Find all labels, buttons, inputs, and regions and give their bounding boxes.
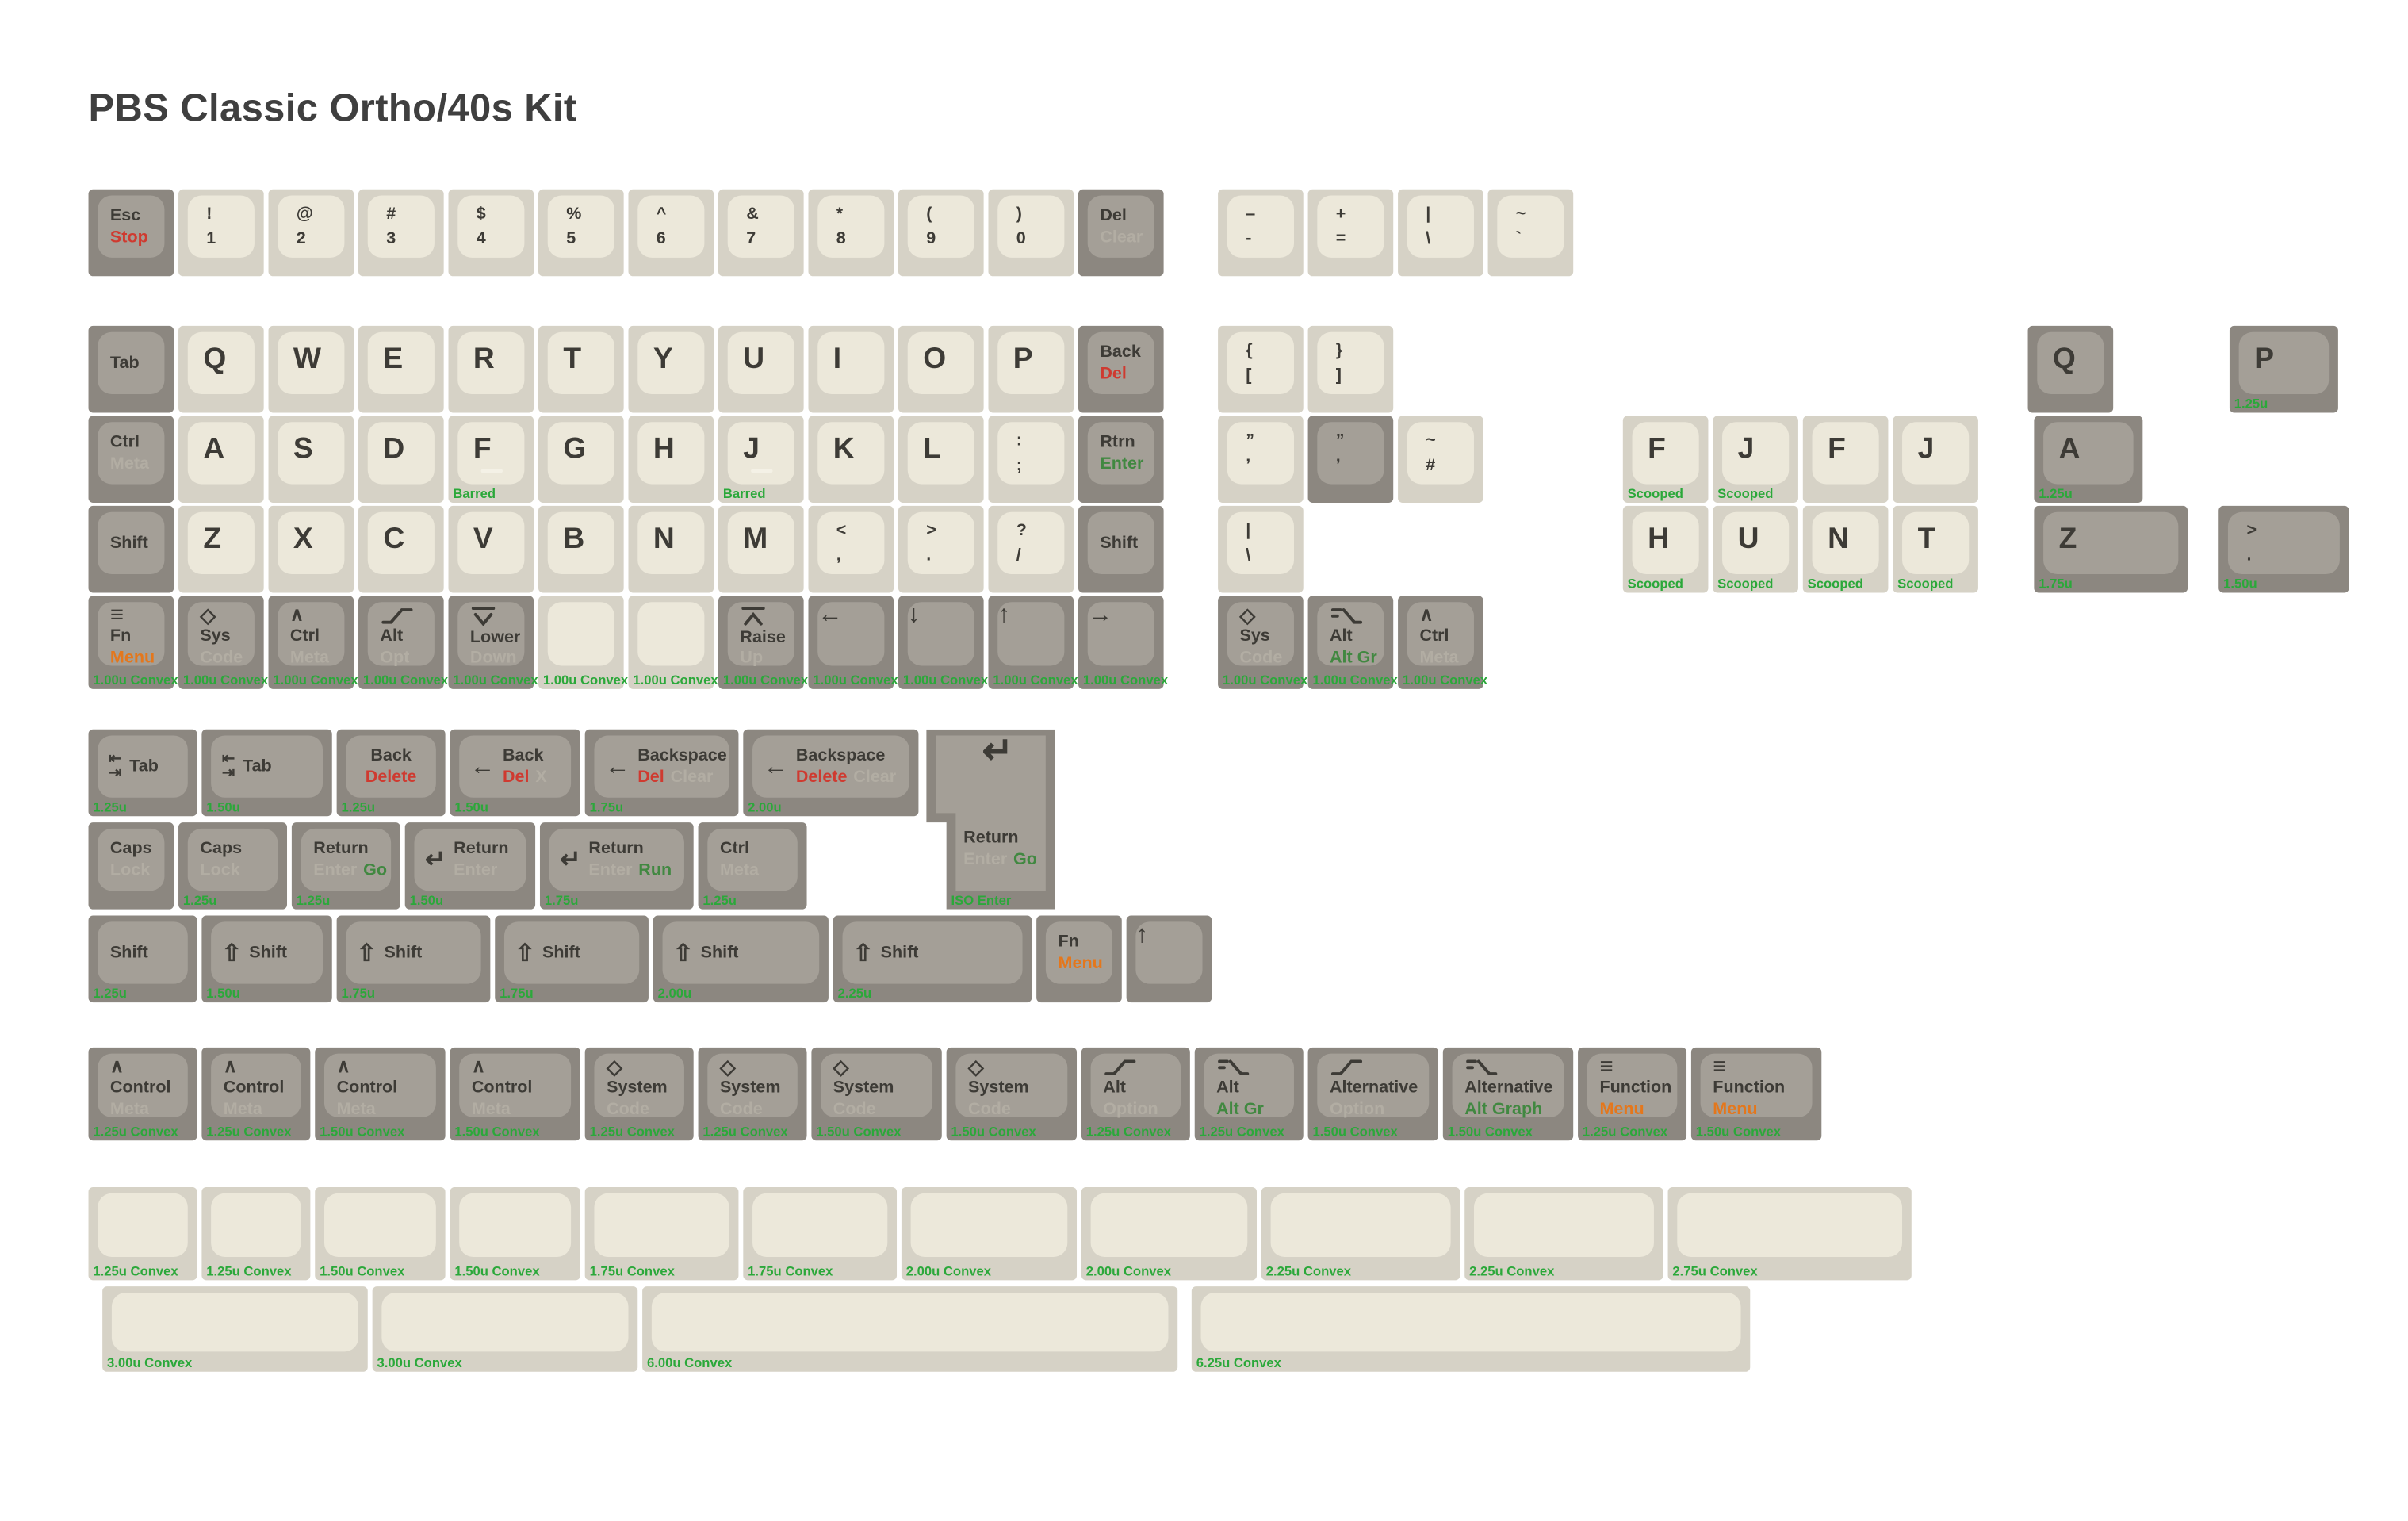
legend-text: Delete (796, 768, 848, 787)
key-legend: ← (817, 602, 884, 670)
key-legend: RaiseUp (728, 602, 794, 670)
legend-text: F (1828, 433, 1846, 467)
key-tilde-hash: ~# (1398, 416, 1483, 503)
key-legend: Z (188, 512, 255, 574)
key-legend: I (817, 332, 884, 394)
size-label: 1.25u Convex (206, 1263, 291, 1279)
key-m: M (718, 506, 804, 593)
legend-line: Opt (380, 648, 434, 667)
legend-text: % (566, 205, 581, 224)
legend-text: ) (1016, 205, 1022, 224)
legend-text: X (535, 768, 546, 787)
legend-text: Rtrn (1100, 433, 1135, 452)
shift-icon: ⇧ (515, 943, 535, 963)
legend-text: P (2254, 343, 2274, 377)
key-space-3-00-b: 3.00u Convex (373, 1286, 638, 1372)
legend-line: Function (1713, 1078, 1812, 1098)
key-legend: Q (188, 332, 255, 394)
key-k: K (808, 416, 894, 503)
size-label: 1.25u (93, 986, 127, 1002)
legend-text: Tab (110, 354, 140, 373)
key-legend: LowerDown (457, 602, 524, 670)
legend-text: T (1918, 523, 1936, 557)
key-p-dark: P1.25u (2230, 326, 2338, 413)
legend-line: Ctrl (290, 627, 344, 646)
key-legend: ^6 (637, 196, 704, 258)
shift-row-row: Shift1.25u⇧Shift1.50u⇧Shift1.75u⇧Shift1.… (89, 916, 1212, 1003)
legend-text: Del (1100, 206, 1127, 225)
size-label: Scooped (1717, 485, 1773, 501)
legend-text: A (2059, 433, 2081, 467)
key-legend: ?/ (997, 512, 1064, 574)
legend-text: Backspace (637, 746, 727, 765)
size-label: 1.50u Convex (320, 1263, 404, 1279)
key-f-extra: F (1803, 416, 1889, 503)
key-legend: |\ (1227, 512, 1294, 574)
size-label: 1.25u Convex (590, 1124, 675, 1140)
size-label: Barred (723, 485, 766, 501)
key-shift-left: Shift (89, 506, 174, 593)
key-legend: Shift (1088, 512, 1154, 574)
key-back-delete: BackDelete1.25u (337, 730, 446, 817)
legend-text: ? (1016, 521, 1027, 540)
legend-line: Return (963, 829, 1037, 848)
size-label: 1.25u Convex (93, 1124, 178, 1140)
legend-text: ” (1246, 431, 1254, 450)
key-legend: ReturnEnterGo (963, 829, 1037, 869)
legend-text: Return (454, 840, 508, 859)
legend-line: Option (1330, 1099, 1429, 1118)
key-legend: AlternativeAlt Graph (1453, 1054, 1564, 1122)
fn-icon: ≡ (1599, 1057, 1677, 1077)
control-system-row-row: ∧ControlMeta1.25u Convex∧ControlMeta1.25… (89, 1048, 1822, 1140)
legend-text: Code (200, 648, 243, 667)
key-space-2-00-b: 2.00u Convex (1081, 1187, 1257, 1280)
legend-text: ~ (1426, 431, 1436, 450)
size-label: Scooped (1897, 576, 1953, 592)
legend-line: Shift (110, 534, 164, 553)
size-label: 3.00u Convex (107, 1354, 192, 1370)
legend-text: Control (337, 1078, 398, 1098)
legend-line: Meta (472, 1099, 571, 1118)
legend-text: . (926, 546, 931, 565)
legend-line: . (2246, 546, 2339, 565)
legend-text: 6 (657, 229, 666, 248)
legend-text: Menu (1059, 953, 1103, 972)
key-legend: ←BackspaceDelClear (594, 736, 729, 798)
legend-line: > (926, 521, 974, 540)
legend-text: Code (968, 1099, 1011, 1118)
key-t: T (538, 326, 624, 413)
legend-text: Back (503, 746, 543, 765)
size-label: 1.25u Convex (702, 1124, 787, 1140)
legend-line: Shift (701, 943, 739, 962)
legend-line: Menu (110, 648, 164, 667)
keycap-top (594, 1193, 729, 1257)
size-label: 1.00u Convex (363, 672, 448, 688)
legend-text: Shift (110, 534, 148, 553)
key-pipe-backslash-2: |\ (1218, 506, 1304, 593)
key-legend: R (457, 332, 524, 394)
legend-text: M (743, 523, 768, 557)
legend-text: 5 (566, 229, 576, 248)
legend-text: Lock (110, 860, 150, 879)
key-return-enter-run: ↵ReturnEnterRun1.75u (540, 822, 694, 910)
key-legend: C (368, 512, 435, 574)
size-label: 1.25u (2039, 485, 2073, 501)
key-legend: ∧ControlMeta (98, 1054, 187, 1122)
legend-line: | (1426, 205, 1474, 224)
key-space-2-25-b: 2.25u Convex (1464, 1187, 1663, 1280)
legend-text: ’ (1336, 455, 1341, 474)
homing-cluster-row: HScoopedUScoopedNScoopedTScooped (1623, 506, 1978, 593)
legend-line: Code (200, 648, 254, 667)
key-legend: A (2043, 422, 2133, 484)
key-legend: E (368, 332, 435, 394)
legend-text: @ (297, 205, 313, 224)
size-label: 1.00u Convex (1403, 672, 1487, 688)
legend-line: . (926, 546, 974, 565)
key-arrow-left: ←1.00u Convex (808, 596, 894, 688)
key-legend: ↵ReturnEnterRun (549, 829, 684, 891)
key-lower-down: LowerDown1.00u Convex (449, 596, 534, 688)
size-label: 2.00u (658, 986, 692, 1002)
size-label: 1.75u Convex (748, 1263, 833, 1279)
key-alt-altgr: AltAlt Gr1.00u Convex (1308, 596, 1394, 688)
key-y: Y (629, 326, 714, 413)
caps-return-row-row: CapsLockCapsLock1.25uReturnEnterGo1.25u↵… (89, 822, 807, 910)
key-legend: Shift (98, 921, 187, 983)
legend-line: Raise (740, 628, 794, 647)
legend-line: Return (454, 840, 508, 859)
key-quotes-dark: ”’ (1308, 416, 1394, 503)
legend-text: Ctrl (720, 840, 749, 859)
size-label: 2.25u (838, 986, 872, 1002)
legend-text: E (383, 343, 403, 377)
main-block-row: TabQWERTYUIOPBackDel (89, 326, 1164, 413)
fn-icon: ≡ (110, 605, 164, 625)
keycap-top (1091, 1193, 1248, 1257)
legend-text: Code (720, 1099, 763, 1118)
legend-text: ↓ (908, 602, 921, 670)
legend-line: Alt (1330, 627, 1384, 646)
legend-text: Alt (1330, 627, 1353, 646)
key-space-1-25-b: 1.25u Convex (201, 1187, 310, 1280)
key-ctrl-meta-3: CtrlMeta1.25u (699, 822, 807, 910)
dark-alpha-cluster-row: QP1.25u (2028, 326, 2338, 413)
legend-line: \ (1246, 546, 1294, 565)
legend-line: DelClear (637, 768, 727, 787)
size-label: 1.50u (410, 892, 444, 908)
key-legend: V (457, 512, 524, 574)
legend-line: System (968, 1078, 1067, 1098)
legend-line: Shift (384, 943, 422, 962)
key-rtrn-enter: RtrnEnter (1078, 416, 1164, 503)
legend-line: Return (313, 840, 391, 859)
legend-text: Tab (129, 757, 159, 776)
legend-text: D (383, 433, 404, 467)
key-legend: Z (2043, 512, 2178, 574)
key-a: A (178, 416, 264, 503)
spacebar-row-large-row: 3.00u Convex3.00u Convex6.00u Convex6.25… (102, 1286, 1750, 1372)
legend-line: Down (470, 649, 524, 668)
legend-text: Function (1713, 1078, 1785, 1098)
legend-line: Code (833, 1099, 932, 1118)
key-plus-equals: += (1308, 190, 1394, 277)
key-legend: ⇧Shift (843, 921, 1023, 983)
legend-text: { (1246, 341, 1252, 360)
legend-line: Shift (542, 943, 580, 962)
key-space-2-00-a: 2.00u Convex (902, 1187, 1077, 1280)
key-legend: P (997, 332, 1064, 394)
legend-line: Backspace (637, 746, 727, 765)
size-label: 1.25u (341, 799, 375, 815)
legend-line: ” (1336, 431, 1384, 450)
size-label: 1.25u Convex (1583, 1124, 1667, 1140)
legend-text: ; (1016, 455, 1022, 474)
sys-icon: ◇ (200, 605, 254, 625)
legend-text: N (1828, 523, 1849, 557)
keycap-top (1677, 1193, 1902, 1257)
legend-text: L (923, 433, 941, 467)
legend-text: - (1246, 229, 1251, 248)
key-legend: ∧ControlMeta (459, 1054, 571, 1122)
key-back-del: BackDel (1078, 326, 1164, 413)
key-n-scooped: NScooped (1803, 506, 1889, 593)
tab-backspace-row-row: ⇤⇥Tab1.25u⇤⇥Tab1.50uBackDelete1.25u←Back… (89, 730, 919, 817)
key-legend: ⇧Shift (504, 921, 639, 983)
option-icon (380, 605, 434, 625)
key-pipe-backslash: |\ (1398, 190, 1483, 277)
homing-cluster-row: FScoopedJScoopedFJ (1623, 416, 1978, 503)
key-5: %5 (538, 190, 624, 277)
legend-text: ] (1336, 366, 1342, 385)
size-label: 1.00u Convex (1223, 672, 1307, 688)
legend-text: ! (206, 205, 212, 224)
key-9: (9 (898, 190, 984, 277)
size-label: 1.50u (206, 799, 240, 815)
legend-line: - (1246, 229, 1294, 248)
legend-text: Tab (243, 757, 272, 776)
spacebar-row-small-row: 1.25u Convex1.25u Convex1.50u Convex1.50… (89, 1187, 1912, 1280)
key-legend: F (1633, 422, 1699, 484)
option-icon (1103, 1057, 1181, 1077)
legend-text: Alt (1103, 1078, 1126, 1098)
legend-text: Shift (249, 943, 287, 962)
key-legend: AlternativeOption (1317, 1054, 1429, 1122)
size-label: 1.25u Convex (1200, 1124, 1284, 1140)
key-legend: DelClear (1088, 196, 1154, 258)
legend-line: * (836, 205, 885, 224)
legend-text: Return (588, 840, 643, 859)
legend-text: Down (470, 649, 517, 668)
legend-line: Stop (110, 228, 164, 247)
legend-line: ~ (1426, 431, 1474, 450)
key-legend: P (2239, 332, 2329, 394)
legend-text: Meta (472, 1099, 511, 1118)
legend-text: System (833, 1078, 894, 1098)
key-legend: Y (637, 332, 704, 394)
key-legend: RtrnEnter (1088, 422, 1154, 484)
legend-text: Ctrl (110, 433, 140, 452)
size-label: 1.25u (183, 892, 217, 908)
legend-line: Menu (1599, 1099, 1677, 1118)
legend-text: Enter (313, 860, 357, 879)
key-esc-stop: EscStop (89, 190, 174, 277)
key-legend: ⇧Shift (663, 921, 820, 983)
legend-text: Esc (110, 206, 140, 225)
altgr-icon (1330, 605, 1384, 625)
key-b: B (538, 506, 624, 593)
legend-text: Menu (110, 648, 155, 667)
legend-text: Return (313, 840, 368, 859)
legend-text: Del (1100, 364, 1127, 383)
key-legend: @2 (278, 196, 344, 258)
keycap-top (637, 602, 704, 665)
legend-line: 5 (566, 229, 614, 248)
legend-text: System (607, 1078, 668, 1098)
key-legend: )0 (997, 196, 1064, 258)
legend-text: 0 (1016, 229, 1026, 248)
key-legend: AltOpt (368, 602, 435, 670)
size-label: Barred (453, 485, 496, 501)
size-label: 1.75u (500, 986, 534, 1002)
key-legend: U (728, 332, 794, 394)
key-c: C (358, 506, 444, 593)
keycap-kit-canvas: PBS Classic Ortho/40s Kit EscStop!1@2#3$… (0, 0, 2408, 1521)
legend-text: = (1336, 229, 1346, 248)
key-legend: ReturnEnterGo (301, 829, 391, 891)
legend-text: P (1013, 343, 1033, 377)
legend-text: Delete (366, 768, 417, 787)
legend-text: Sys (200, 627, 230, 646)
legend-text: J (1918, 433, 1935, 467)
legend-text: Backspace (796, 746, 886, 765)
key-legend: J (1722, 422, 1789, 484)
size-label: 1.00u Convex (723, 672, 808, 688)
legend-line: System (720, 1078, 798, 1098)
key-2: @2 (269, 190, 354, 277)
size-label: 2.75u Convex (1672, 1263, 1757, 1279)
size-label: Scooped (1808, 576, 1863, 592)
ctrl-icon: ∧ (290, 605, 344, 625)
key-w: W (269, 326, 354, 413)
key-function-menu-1-50: ≡FunctionMenu1.50u Convex (1691, 1048, 1821, 1140)
legend-line: ( (926, 205, 974, 224)
return-icon: ↵ (982, 741, 1013, 761)
legend-text: / (1016, 546, 1021, 565)
legend-line: Shift (110, 943, 188, 962)
key-control-meta-1-50-b: ∧ControlMeta1.50u Convex (450, 1048, 580, 1140)
legend-text: Return (963, 829, 1018, 848)
key-s: S (269, 416, 354, 503)
legend-line: } (1336, 341, 1384, 360)
key-i: I (808, 326, 894, 413)
legend-text: Meta (720, 860, 759, 879)
legend-text: ~ (1516, 205, 1526, 224)
key-legend: → (1088, 602, 1154, 670)
key-arrow-down: ↓1.00u Convex (898, 596, 984, 688)
legend-text: ← (817, 602, 842, 670)
legend-text: Alt Gr (1330, 648, 1377, 667)
key-del-clear: DelClear (1078, 190, 1164, 277)
legend-text: W (293, 343, 321, 377)
legend-text: Code (833, 1099, 876, 1118)
legend-text: Control (472, 1078, 533, 1098)
legend-text: Q (203, 343, 226, 377)
key-legend: ◇SystemCode (707, 1054, 797, 1122)
legend-line: Lock (200, 860, 278, 879)
legend-line: Meta (290, 648, 344, 667)
key-blank-convex: 1.00u Convex (538, 596, 624, 688)
ctrl-icon: ∧ (472, 1057, 571, 1077)
legend-line: 4 (477, 229, 525, 248)
legend-line: 9 (926, 229, 974, 248)
legend-line: Menu (1713, 1099, 1812, 1118)
legend-line: ? (1016, 521, 1065, 540)
key-return-enter: ↵ReturnEnter1.50u (405, 822, 535, 910)
legend-text: Opt (380, 648, 409, 667)
legend-line: EnterGo (963, 849, 1037, 868)
size-label: Scooped (1628, 485, 1683, 501)
key-quotes-light: ”’ (1218, 416, 1304, 503)
legend-text: Raise (740, 628, 785, 647)
size-label: 2.00u (748, 799, 782, 815)
key-brace-bracket-right: }] (1308, 326, 1394, 413)
legend-text: 1 (206, 229, 216, 248)
key-space-1-75-a: 1.75u Convex (585, 1187, 739, 1280)
legend-text: Enter (963, 849, 1007, 868)
legend-line: = (1336, 229, 1384, 248)
legend-text: Ctrl (290, 627, 320, 646)
key-legend: ◇SystemCode (594, 1054, 683, 1122)
altgr-icon (1216, 1057, 1294, 1077)
key-j-barred: JBarred (718, 416, 804, 503)
ctrl-icon: ∧ (1419, 605, 1473, 625)
key-legend: N (1813, 512, 1879, 574)
legend-text: Sys (1239, 627, 1269, 646)
ctrl-icon: ∧ (110, 1057, 188, 1077)
key-legend: B (548, 512, 614, 574)
key-legend: {[ (1227, 332, 1294, 394)
legend-line: Shift (881, 943, 919, 962)
legend-text: [ (1246, 366, 1251, 385)
legend-text: ^ (657, 205, 667, 224)
size-label: 2.25u Convex (1469, 1263, 1554, 1279)
key-arrow-right: →1.00u Convex (1078, 596, 1164, 688)
key-shift-1-75-b: ⇧Shift1.75u (495, 916, 649, 1003)
legend-text: Shift (384, 943, 422, 962)
key-tab-1-50: ⇤⇥Tab1.50u (201, 730, 331, 817)
legend-text: Lock (200, 860, 239, 879)
size-label: 2.00u Convex (906, 1263, 991, 1279)
legend-text: Code (1239, 648, 1282, 667)
legend-text: 7 (746, 229, 756, 248)
key-legend: (9 (908, 196, 974, 258)
key-legend: ~` (1497, 196, 1564, 258)
legend-text: Function (1599, 1078, 1671, 1098)
key-brace-bracket-left: {[ (1218, 326, 1304, 413)
legend-line: Del (1100, 364, 1154, 383)
right-cluster-row: |\ (1218, 506, 1304, 593)
key-shift-1-50: ⇧Shift1.50u (201, 916, 331, 1003)
key-backspace-delete-clear: ←BackspaceDeleteClear2.00u (743, 730, 918, 817)
legend-text: ` (1516, 229, 1522, 248)
legend-line: Code (968, 1099, 1067, 1118)
legend-text: Clear (1100, 228, 1143, 247)
size-label: 2.25u Convex (1266, 1263, 1351, 1279)
key-legend: F (1813, 422, 1879, 484)
